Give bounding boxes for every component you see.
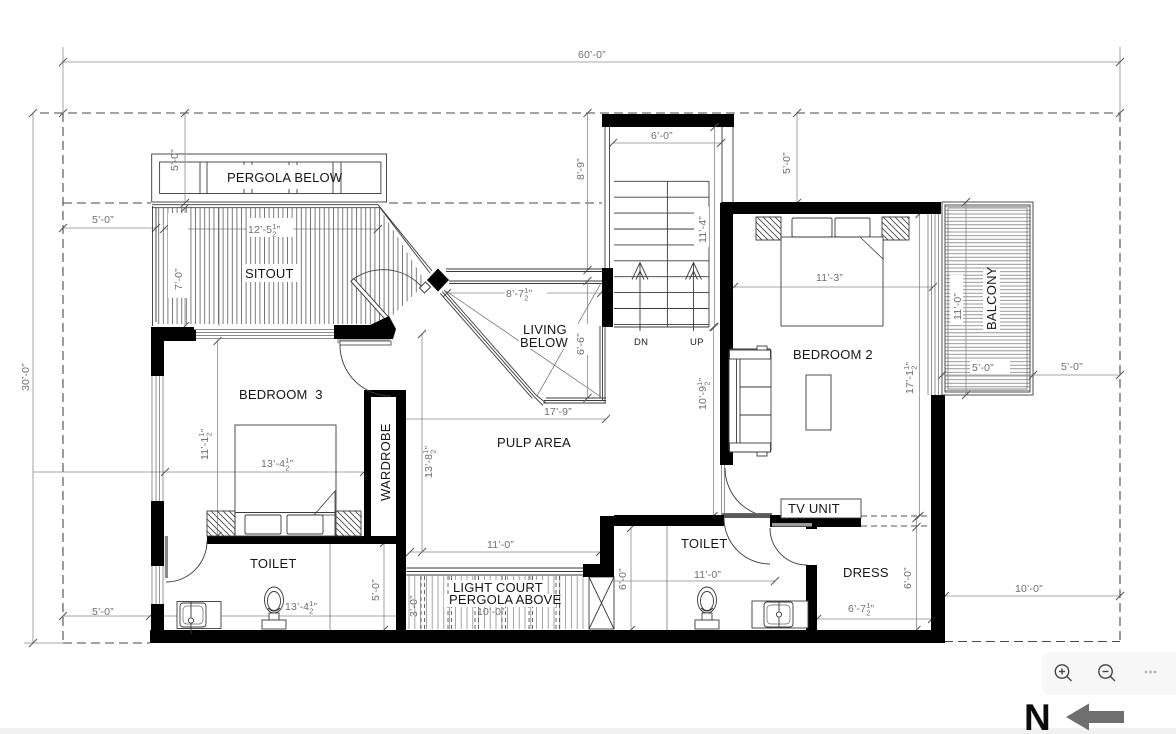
svg-text:DRESS: DRESS	[843, 565, 889, 580]
svg-text:60’-0”: 60’-0”	[578, 49, 606, 61]
svg-text:DN: DN	[634, 337, 648, 348]
svg-text:PERGOLA ABOVE: PERGOLA ABOVE	[449, 592, 562, 607]
svg-text:5’-0”: 5’-0”	[972, 362, 994, 374]
svg-text:SITOUT: SITOUT	[245, 266, 294, 281]
svg-text:5’-0”: 5’-0”	[1061, 361, 1083, 373]
svg-text:TOILET: TOILET	[250, 556, 296, 571]
svg-text:8’-9”: 8’-9”	[575, 158, 587, 180]
svg-text:BELOW: BELOW	[520, 335, 568, 350]
svg-text:BEDROOM 2: BEDROOM 2	[793, 347, 873, 362]
svg-text:TOILET: TOILET	[681, 536, 727, 551]
svg-text:11’-0”: 11’-0”	[487, 539, 514, 551]
svg-text:6’-0”: 6’-0”	[617, 568, 629, 590]
svg-text:10’-0”: 10’-0”	[1015, 583, 1043, 595]
svg-text:10’-0”: 10’-0”	[477, 606, 505, 618]
svg-text:5’-0”: 5’-0”	[92, 214, 114, 226]
svg-text:5’-0”: 5’-0”	[169, 149, 181, 171]
svg-text:WARDROBE: WARDROBE	[378, 423, 393, 501]
svg-text:6’-6”: 6’-6”	[575, 333, 587, 355]
svg-text:UP: UP	[690, 337, 704, 348]
svg-text:30’-0”: 30’-0”	[20, 363, 32, 391]
svg-text:BALCONY: BALCONY	[984, 266, 999, 330]
svg-text:PULP AREA: PULP AREA	[497, 435, 571, 450]
svg-text:3’-0”: 3’-0”	[408, 595, 420, 617]
svg-text:11’-4”: 11’-4”	[697, 216, 709, 243]
svg-text:N: N	[1024, 697, 1051, 734]
svg-text:TV UNIT: TV UNIT	[788, 501, 840, 516]
svg-text:11’-3”: 11’-3”	[816, 272, 843, 284]
svg-text:6’-0”: 6’-0”	[651, 130, 673, 142]
svg-text:5’-0”: 5’-0”	[92, 606, 114, 618]
svg-text:PERGOLA BELOW: PERGOLA BELOW	[227, 170, 343, 185]
svg-text:5’-0”: 5’-0”	[781, 152, 793, 174]
svg-text:11’-0”: 11’-0”	[952, 293, 964, 320]
svg-text:BEDROOM 3: BEDROOM 3	[239, 387, 323, 402]
svg-text:17’-9”: 17’-9”	[544, 406, 572, 418]
svg-text:5’-0”: 5’-0”	[370, 579, 382, 601]
svg-text:11’-0”: 11’-0”	[694, 569, 721, 581]
svg-text:6’-0”: 6’-0”	[902, 567, 914, 589]
svg-text:7’-0”: 7’-0”	[173, 268, 185, 290]
